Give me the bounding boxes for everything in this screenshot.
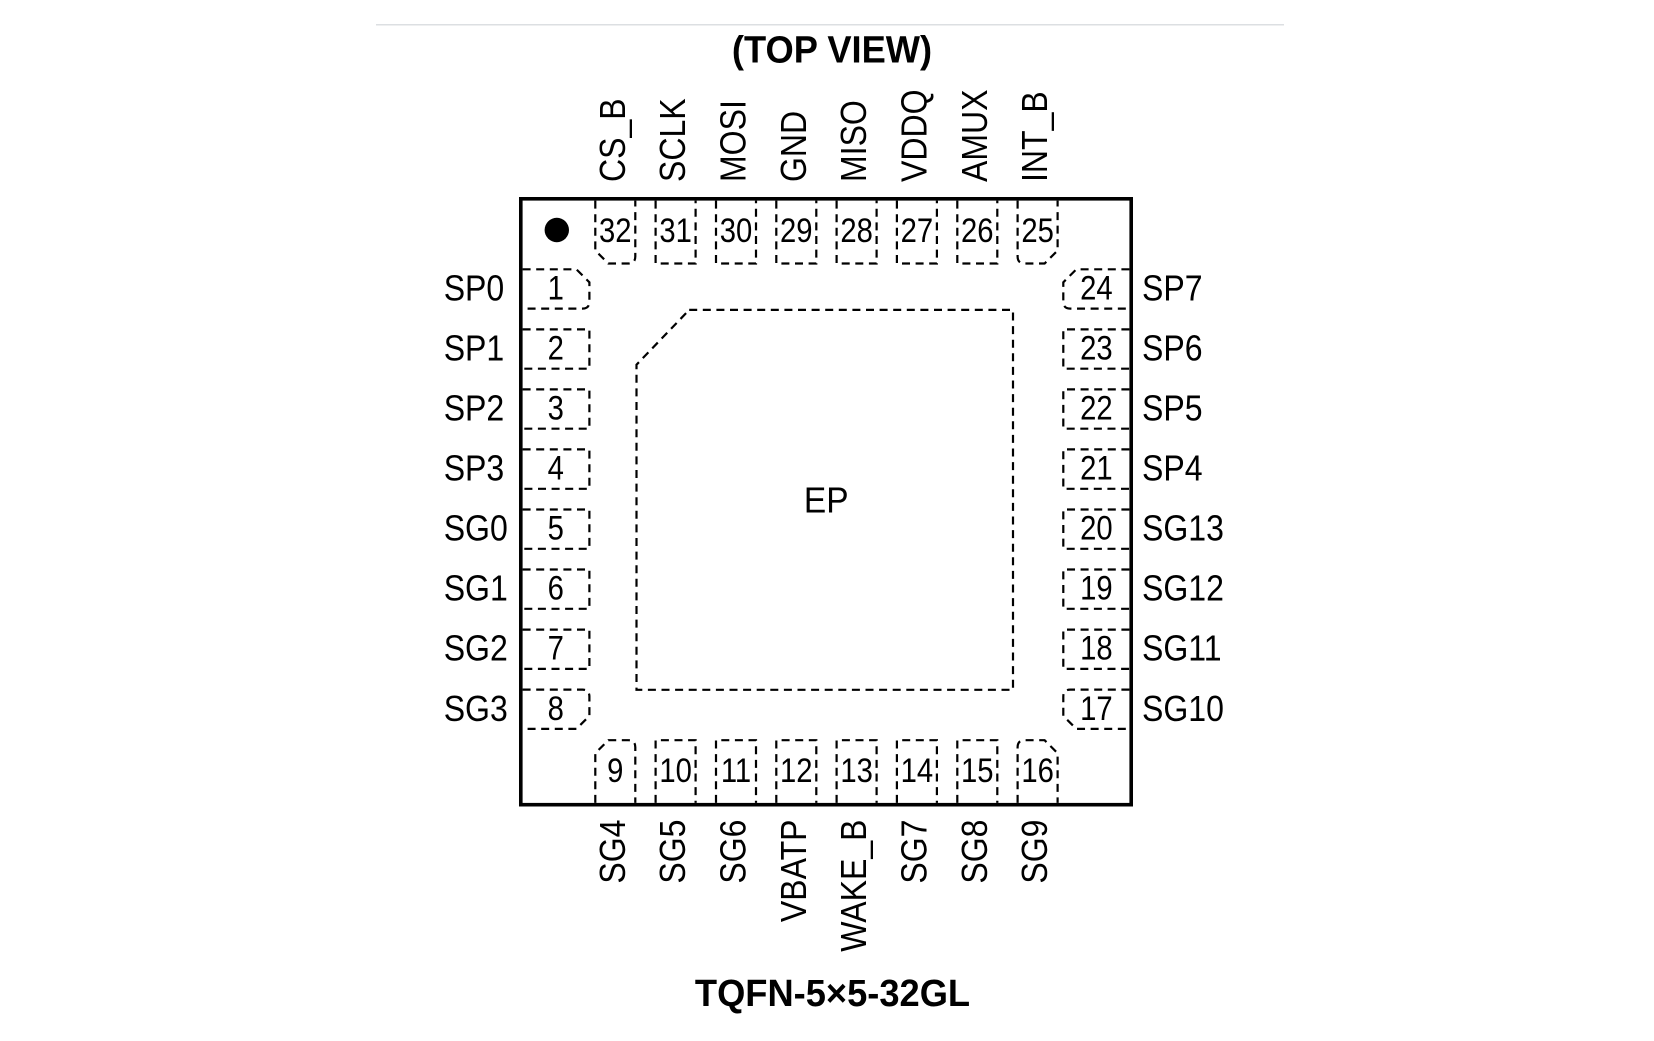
svg-text:24: 24 bbox=[1080, 268, 1113, 307]
svg-text:18: 18 bbox=[1080, 629, 1113, 668]
svg-text:SG1: SG1 bbox=[444, 569, 508, 609]
svg-text:SP6: SP6 bbox=[1142, 329, 1203, 369]
svg-text:AMUX: AMUX bbox=[955, 89, 995, 182]
svg-text:SP0: SP0 bbox=[444, 269, 505, 309]
svg-text:15: 15 bbox=[961, 751, 994, 790]
svg-text:17: 17 bbox=[1080, 689, 1113, 728]
svg-text:1: 1 bbox=[548, 268, 564, 307]
svg-text:23: 23 bbox=[1080, 328, 1113, 367]
svg-text:SG3: SG3 bbox=[444, 689, 508, 729]
svg-text:SP3: SP3 bbox=[444, 449, 505, 489]
svg-text:VBATP: VBATP bbox=[774, 820, 814, 923]
svg-text:SG2: SG2 bbox=[444, 629, 508, 669]
svg-text:WAKE_B: WAKE_B bbox=[834, 820, 874, 952]
svg-text:VDDQ: VDDQ bbox=[895, 89, 935, 182]
svg-text:10: 10 bbox=[659, 751, 692, 790]
svg-text:SP2: SP2 bbox=[444, 389, 505, 429]
svg-text:6: 6 bbox=[548, 569, 564, 608]
svg-text:7: 7 bbox=[548, 629, 564, 668]
svg-text:2: 2 bbox=[548, 328, 564, 367]
svg-text:31: 31 bbox=[659, 211, 692, 250]
svg-text:SG5: SG5 bbox=[653, 820, 693, 884]
svg-text:22: 22 bbox=[1080, 388, 1113, 427]
svg-text:GND: GND bbox=[774, 111, 814, 182]
svg-text:14: 14 bbox=[901, 751, 934, 790]
svg-text:13: 13 bbox=[840, 751, 873, 790]
svg-text:MOSI: MOSI bbox=[714, 100, 754, 182]
svg-text:CS_B: CS_B bbox=[593, 98, 633, 182]
svg-text:SG0: SG0 bbox=[444, 509, 508, 549]
svg-text:4: 4 bbox=[548, 449, 564, 488]
svg-text:16: 16 bbox=[1021, 751, 1054, 790]
svg-text:EP: EP bbox=[804, 481, 849, 520]
svg-text:SG4: SG4 bbox=[593, 820, 633, 884]
svg-text:SP4: SP4 bbox=[1142, 449, 1203, 489]
svg-text:26: 26 bbox=[961, 211, 994, 250]
svg-text:SG8: SG8 bbox=[955, 820, 995, 884]
svg-text:29: 29 bbox=[780, 211, 813, 250]
svg-text:SG11: SG11 bbox=[1142, 629, 1222, 669]
svg-text:25: 25 bbox=[1021, 211, 1054, 250]
svg-text:MISO: MISO bbox=[834, 100, 874, 182]
svg-text:SP1: SP1 bbox=[444, 329, 505, 369]
svg-text:SCLK: SCLK bbox=[653, 98, 693, 182]
svg-text:SG13: SG13 bbox=[1142, 509, 1224, 549]
svg-text:28: 28 bbox=[840, 211, 873, 250]
svg-text:5: 5 bbox=[548, 509, 564, 548]
svg-text:SG7: SG7 bbox=[895, 820, 935, 884]
svg-text:32: 32 bbox=[599, 211, 632, 250]
svg-text:SG6: SG6 bbox=[714, 820, 754, 884]
svg-text:3: 3 bbox=[548, 388, 564, 427]
svg-text:21: 21 bbox=[1080, 449, 1113, 488]
svg-text:19: 19 bbox=[1080, 569, 1113, 608]
svg-text:SP5: SP5 bbox=[1142, 389, 1203, 429]
svg-text:SG10: SG10 bbox=[1142, 689, 1224, 729]
svg-text:(TOP VIEW): (TOP VIEW) bbox=[732, 28, 932, 71]
svg-text:8: 8 bbox=[548, 689, 564, 728]
svg-text:SG12: SG12 bbox=[1142, 569, 1224, 609]
svg-text:11: 11 bbox=[721, 751, 751, 790]
svg-text:INT_B: INT_B bbox=[1015, 91, 1055, 182]
svg-text:SG9: SG9 bbox=[1015, 820, 1055, 884]
svg-text:SP7: SP7 bbox=[1142, 269, 1203, 309]
svg-text:9: 9 bbox=[607, 751, 623, 790]
svg-text:30: 30 bbox=[720, 211, 753, 250]
svg-text:27: 27 bbox=[901, 211, 934, 250]
svg-text:12: 12 bbox=[780, 751, 813, 790]
svg-text:TQFN-5×5-32GL: TQFN-5×5-32GL bbox=[695, 971, 970, 1014]
svg-text:20: 20 bbox=[1080, 509, 1113, 548]
